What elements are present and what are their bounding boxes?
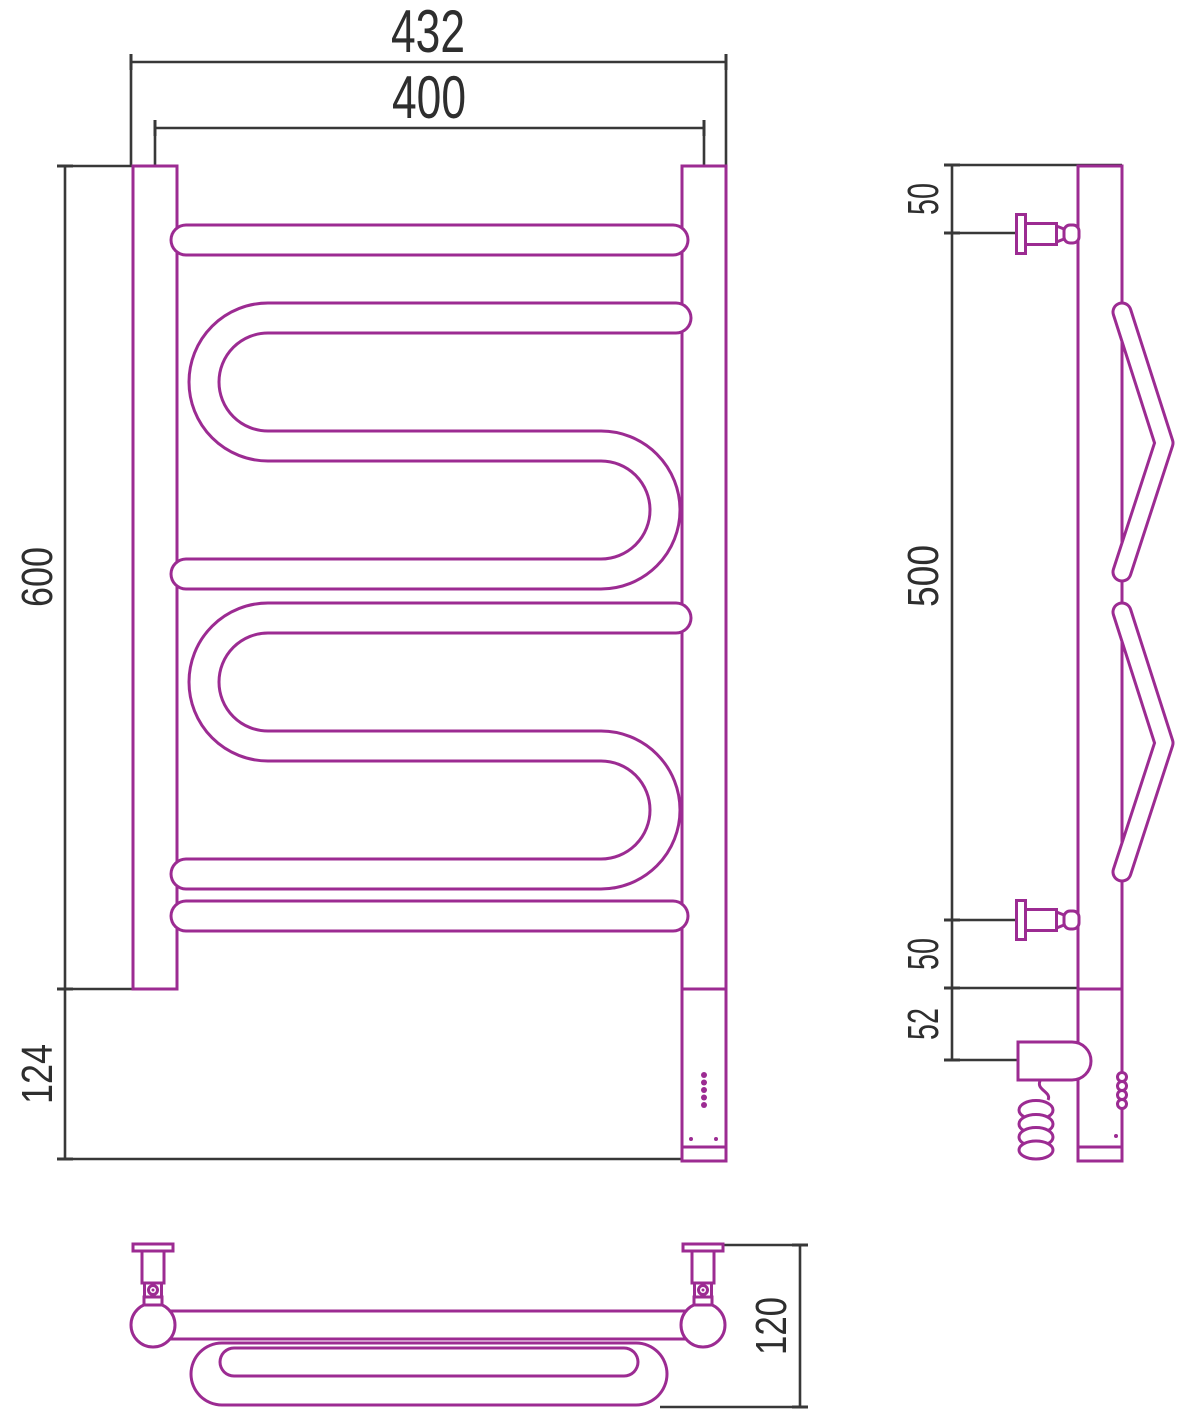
serpentine-2-fill xyxy=(186,618,676,874)
housing-end-cap xyxy=(682,1147,726,1161)
dim-50-bottom-label: 50 xyxy=(899,938,948,970)
plan-bracket-left xyxy=(133,1244,173,1305)
wall-bracket-top xyxy=(1017,215,1080,254)
wall-bracket-bottom xyxy=(1017,901,1080,940)
dim-600-label: 600 xyxy=(13,547,62,607)
control-housing xyxy=(682,989,726,1147)
side-view: 50 500 50 52 xyxy=(899,165,1164,1161)
plan-bracket-right xyxy=(683,1244,723,1305)
dim-432-label: 432 xyxy=(391,0,465,65)
front-view: 432 400 600 124 xyxy=(13,0,726,1161)
power-cable-coil xyxy=(1019,1101,1053,1160)
dim-124-label: 124 xyxy=(13,1044,62,1104)
side-coil-chevrons xyxy=(1122,312,1164,872)
serpentine-1-fill xyxy=(186,318,676,574)
front-tubes xyxy=(186,240,676,916)
drawing-sheet: 432 400 600 124 xyxy=(0,0,1200,1427)
towel-rail-drawing: 432 400 600 124 xyxy=(0,0,1200,1427)
cable-neck xyxy=(1039,1081,1048,1100)
right-post-section xyxy=(681,1303,725,1347)
dim-400-label: 400 xyxy=(392,64,466,131)
dim-50-top-label: 50 xyxy=(899,183,948,215)
left-post-section xyxy=(131,1303,175,1347)
heater-box xyxy=(1018,1042,1091,1080)
dim-52-label: 52 xyxy=(899,1008,948,1040)
dim-120-label: 120 xyxy=(747,1297,796,1355)
top-view: 120 xyxy=(131,1244,808,1407)
right-post xyxy=(682,166,726,989)
side-housing-end-cap xyxy=(1078,1147,1122,1161)
dim-500-label: 500 xyxy=(899,545,948,607)
